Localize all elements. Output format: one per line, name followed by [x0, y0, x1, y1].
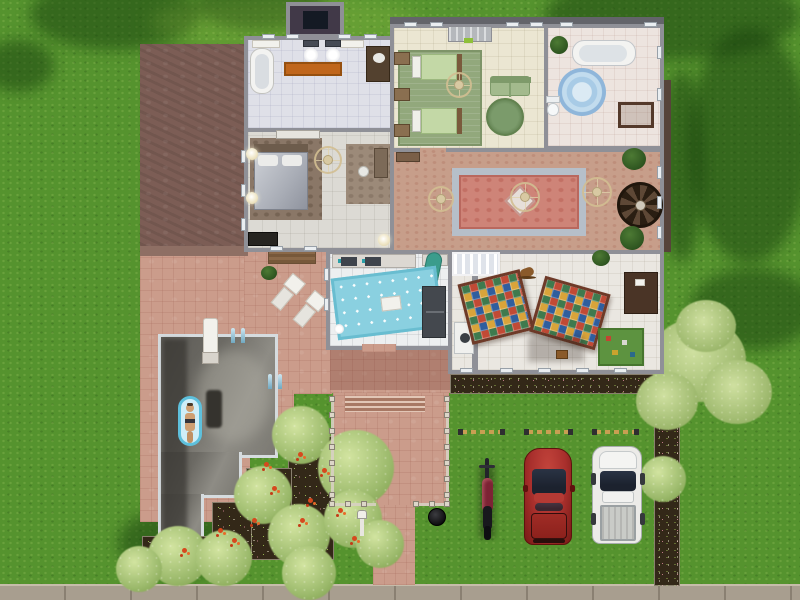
- sim-swimsuit: [185, 419, 195, 423]
- tree-canopy[interactable]: [636, 372, 698, 430]
- potted-plant[interactable]: [620, 226, 644, 250]
- dark-chest[interactable]: [248, 232, 278, 246]
- window: [657, 226, 662, 239]
- nightstand[interactable]: [394, 124, 410, 137]
- green-loveseat[interactable]: [490, 76, 530, 96]
- window: [286, 34, 299, 39]
- window: [657, 46, 662, 59]
- fence-post: [444, 460, 450, 466]
- porch-steps[interactable]: [345, 396, 425, 412]
- red-flower: [232, 538, 237, 543]
- diving-board-base: [202, 352, 219, 364]
- motorcycle[interactable]: [477, 458, 497, 550]
- fence-post: [444, 396, 450, 402]
- red-flower: [308, 498, 313, 503]
- ceiling-fan[interactable]: [510, 182, 540, 212]
- ceiling-fan[interactable]: [582, 177, 612, 207]
- nightstand[interactable]: [394, 52, 410, 65]
- round-green-rug[interactable]: [486, 98, 524, 136]
- window: [530, 22, 543, 27]
- red-flower: [352, 536, 357, 541]
- parking-marker-end: [592, 429, 597, 435]
- window: [644, 22, 657, 27]
- window: [657, 166, 662, 179]
- potted-plant[interactable]: [592, 250, 610, 266]
- fence-post: [429, 501, 435, 507]
- car-windshield: [532, 469, 566, 495]
- fence-post: [361, 501, 367, 507]
- pool-ladder[interactable]: [268, 374, 283, 390]
- trash-can[interactable]: [428, 508, 446, 526]
- red-flower: [322, 468, 327, 473]
- red-flower: [264, 462, 269, 467]
- double-bed[interactable]: [254, 144, 308, 210]
- parking-marker-end: [458, 429, 463, 435]
- tree-shadow: [0, 40, 54, 92]
- clawfoot-tub[interactable]: [572, 40, 636, 66]
- fence-post: [329, 444, 335, 450]
- window: [460, 368, 473, 373]
- tree-shadow: [688, 28, 800, 263]
- toy-play-mat[interactable]: [598, 328, 644, 366]
- wood-vanity[interactable]: [366, 46, 390, 82]
- window: [657, 196, 662, 209]
- fence-post: [329, 396, 335, 402]
- window: [262, 34, 275, 39]
- red-flower: [252, 518, 257, 523]
- pool-ladder[interactable]: [231, 328, 246, 344]
- red-flower: [182, 548, 187, 553]
- wall-cabinet[interactable]: [340, 40, 364, 48]
- parking-marker-end: [634, 429, 639, 435]
- red-flower: [218, 528, 223, 533]
- window: [404, 22, 417, 27]
- window: [338, 34, 351, 39]
- fence-post: [329, 412, 335, 418]
- pedestal-sink[interactable]: [326, 48, 340, 62]
- fence-post: [444, 492, 450, 498]
- chimney: [286, 2, 344, 38]
- picnic-table[interactable]: [268, 250, 316, 264]
- truck-bed[interactable]: [600, 505, 636, 541]
- door-opening[interactable]: [420, 148, 446, 154]
- window: [304, 246, 317, 251]
- fence-post: [329, 476, 335, 482]
- parking-marker-end: [568, 429, 573, 435]
- rocking-horse[interactable]: [518, 266, 536, 282]
- desk[interactable]: [374, 148, 388, 178]
- kitchen-sink[interactable]: [365, 257, 381, 266]
- wall-cabinet[interactable]: [252, 40, 280, 48]
- bush: [196, 530, 252, 586]
- fence-post: [444, 444, 450, 450]
- potted-plant[interactable]: [550, 36, 568, 54]
- window: [614, 368, 627, 373]
- sim-hair: [187, 403, 193, 406]
- sink-mirror: [303, 40, 319, 47]
- kitchen-sink[interactable]: [341, 257, 357, 266]
- round-blue-rug[interactable]: [558, 68, 606, 116]
- twin-bed[interactable]: [412, 108, 462, 134]
- window: [364, 34, 377, 39]
- window: [324, 298, 329, 311]
- clawfoot-tub[interactable]: [250, 48, 274, 94]
- pedestal-sink[interactable]: [304, 48, 318, 62]
- sink-mirror: [325, 40, 341, 47]
- fence-post: [413, 501, 419, 507]
- red-flower: [300, 518, 305, 523]
- window: [576, 368, 589, 373]
- wall-lamp[interactable]: [246, 192, 258, 204]
- red-flower: [338, 508, 343, 513]
- fence-post: [329, 428, 335, 434]
- nightstand[interactable]: [394, 88, 410, 101]
- wall-lamp[interactable]: [378, 234, 390, 246]
- wooden-toy[interactable]: [556, 350, 568, 359]
- window: [560, 22, 573, 27]
- bookshelf[interactable]: [396, 152, 420, 162]
- orange-runner-rug[interactable]: [284, 62, 342, 76]
- window: [657, 88, 662, 101]
- window: [538, 368, 551, 373]
- roof-eave: [140, 246, 248, 256]
- red-flower: [298, 452, 303, 457]
- pool-island: [206, 390, 222, 428]
- potted-plant[interactable]: [261, 266, 277, 280]
- tree-canopy[interactable]: [676, 300, 736, 352]
- doormat: [464, 38, 473, 43]
- refrigerator[interactable]: [422, 286, 446, 338]
- potted-plant[interactable]: [622, 148, 646, 170]
- garage-roof: [140, 44, 248, 254]
- window: [270, 246, 283, 251]
- red-flower: [272, 486, 277, 491]
- mailbox[interactable]: [357, 510, 367, 536]
- parking-marker-end: [524, 429, 529, 435]
- fence-post: [444, 501, 450, 507]
- pet-bowl[interactable]: [334, 324, 344, 334]
- wall-lamp[interactable]: [246, 148, 258, 160]
- activity-desk[interactable]: [624, 272, 658, 314]
- window: [324, 268, 329, 281]
- lot-view: [0, 0, 800, 600]
- sidewalk: [0, 584, 800, 600]
- fence-post: [444, 476, 450, 482]
- stoop-shadow: [330, 346, 450, 390]
- fence-post: [329, 460, 335, 466]
- pool-float[interactable]: [178, 396, 202, 446]
- truck-windshield: [600, 471, 636, 491]
- window: [430, 22, 443, 27]
- fence-post: [345, 501, 351, 507]
- parking-marker: [462, 430, 502, 434]
- open-book[interactable]: [380, 295, 402, 311]
- window: [506, 22, 519, 27]
- fence-post: [444, 428, 450, 434]
- parking-marker: [596, 430, 636, 434]
- fence-post: [444, 412, 450, 418]
- bush: [282, 546, 336, 600]
- door-opening[interactable]: [362, 344, 396, 352]
- sim-legs: [187, 431, 193, 443]
- crib[interactable]: [452, 252, 500, 276]
- porch-fence-rail: [331, 503, 376, 506]
- kitchen-counter[interactable]: [332, 254, 416, 268]
- window: [241, 184, 246, 197]
- bush: [640, 456, 686, 502]
- red-car[interactable]: [524, 448, 572, 545]
- ceiling-fan[interactable]: [314, 146, 342, 174]
- white-pickup-truck[interactable]: [592, 446, 642, 544]
- bush: [116, 546, 162, 592]
- fence-post: [329, 501, 335, 507]
- parking-marker-end: [500, 429, 505, 435]
- fence-post: [329, 492, 335, 498]
- tree-canopy[interactable]: [702, 360, 772, 424]
- toilet[interactable]: [546, 96, 560, 116]
- dresser[interactable]: [276, 130, 320, 139]
- ceiling-fan[interactable]: [446, 72, 472, 98]
- parking-marker: [528, 430, 570, 434]
- desk-chair[interactable]: [358, 166, 369, 177]
- window: [241, 218, 246, 231]
- ceiling-fan[interactable]: [428, 186, 454, 212]
- window: [500, 368, 513, 373]
- towel-table[interactable]: [618, 102, 654, 128]
